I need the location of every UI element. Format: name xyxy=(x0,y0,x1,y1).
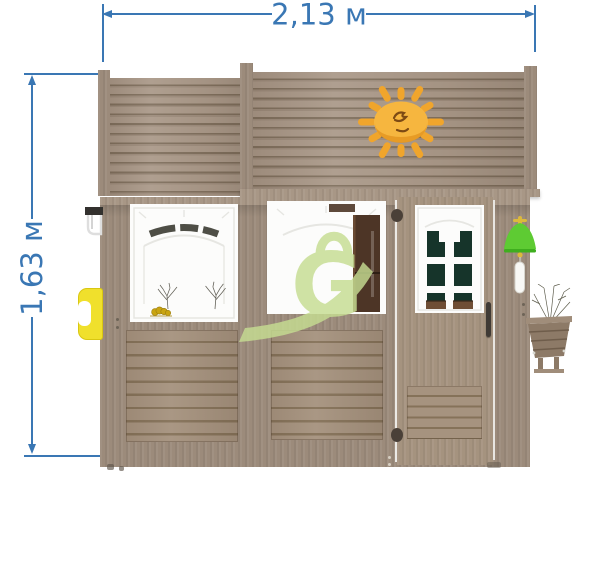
roof-right-post-left xyxy=(240,63,253,197)
roof-right-post-right xyxy=(524,66,537,197)
door-window xyxy=(415,205,484,313)
screw-icon xyxy=(522,303,525,306)
left-lower-panel xyxy=(126,330,238,442)
screw-icon xyxy=(116,326,119,329)
screw-icon xyxy=(116,318,119,321)
screw-icon xyxy=(388,463,391,466)
dimension-line xyxy=(366,13,527,15)
base-foot xyxy=(119,466,124,471)
wall-bracket xyxy=(85,205,105,239)
base-foot xyxy=(107,464,114,470)
screw-icon xyxy=(522,313,525,316)
roof-bottom-rail xyxy=(240,189,540,197)
sun-icon xyxy=(344,86,458,158)
dimension-line xyxy=(31,317,33,447)
left-window xyxy=(130,204,238,322)
door-handle xyxy=(486,302,491,337)
width-dimension-label: 2,13 м xyxy=(271,0,367,31)
base-foot xyxy=(487,462,501,468)
dimension-line xyxy=(31,83,33,219)
door-gap-right xyxy=(493,200,495,460)
roof-left-panel xyxy=(110,78,247,196)
door-hinge-top xyxy=(391,209,403,222)
height-dimension-label: 1,63 м xyxy=(15,220,49,316)
flower-box xyxy=(524,284,576,378)
dimension-extension-tick xyxy=(24,455,100,457)
door-hinge-bottom xyxy=(391,428,403,442)
watermark-logo: G xyxy=(235,218,370,348)
grab-handle-hole xyxy=(78,301,91,326)
dimension-line xyxy=(108,13,272,15)
roof-left-post xyxy=(98,70,110,196)
screw-icon xyxy=(388,456,391,459)
door-lower-panel xyxy=(407,386,482,439)
door-gap-left xyxy=(395,200,397,462)
product-image: 2,13 м 1,63 м xyxy=(0,0,600,567)
